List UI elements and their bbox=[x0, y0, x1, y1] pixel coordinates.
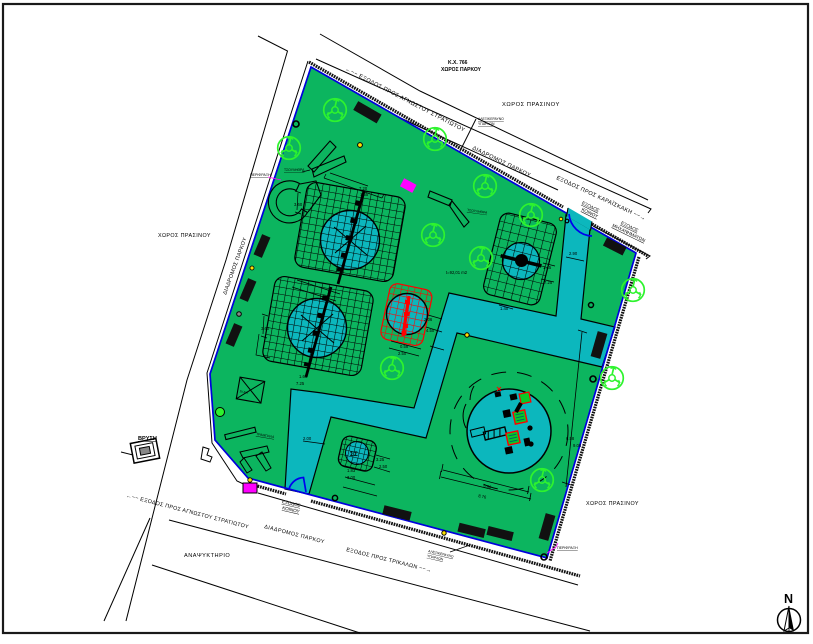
svg-text:ΠΕΡΙΦΡΑΞΗ: ΠΕΡΙΦΡΑΞΗ bbox=[250, 173, 271, 177]
svg-text:7.25: 7.25 bbox=[296, 381, 305, 386]
svg-text:4.50: 4.50 bbox=[426, 328, 435, 333]
svg-text:ΣΣ: ΣΣ bbox=[350, 451, 358, 458]
svg-text:7.20: 7.20 bbox=[359, 186, 368, 191]
svg-text:2.50: 2.50 bbox=[379, 464, 388, 469]
svg-text:3.60: 3.60 bbox=[294, 202, 303, 207]
svg-text:ΑΛΕΞΙΚΕΡΑΥΝΟ: ΑΛΕΞΙΚΕΡΑΥΝΟ bbox=[478, 117, 504, 121]
svg-text:9.06: 9.06 bbox=[573, 443, 582, 448]
svg-text:ΠΕΡΙΦΡΑΞΗ: ΠΕΡΙΦΡΑΞΗ bbox=[557, 546, 578, 550]
svg-text:7.25: 7.25 bbox=[544, 280, 553, 285]
svg-text:1.65: 1.65 bbox=[299, 374, 308, 379]
svg-text:3.25: 3.25 bbox=[376, 457, 385, 462]
svg-text:3.00: 3.00 bbox=[347, 475, 356, 480]
svg-text:ΥΠΑΡΧΩΝ: ΥΠΑΡΧΩΝ bbox=[478, 122, 495, 126]
svg-text:1.65: 1.65 bbox=[360, 192, 369, 197]
svg-text:ΒΡΥΣΗ: ΒΡΥΣΗ bbox=[138, 436, 157, 442]
svg-text:ΤΣΟΥΛΗΘΡΑ: ΤΣΟΥΛΗΘΡΑ bbox=[284, 168, 305, 172]
svg-text:1.83: 1.83 bbox=[347, 468, 356, 473]
svg-text:ΧΩΡΟΣ ΠΡΑΣΙΝΟΥ: ΧΩΡΟΣ ΠΡΑΣΙΝΟΥ bbox=[158, 233, 211, 239]
svg-text:N: N bbox=[784, 592, 793, 606]
svg-text:ΧΩΡΟΣ ΠΑΡΚΟΥ: ΧΩΡΟΣ ΠΑΡΚΟΥ bbox=[441, 67, 482, 73]
svg-text:ΑΝΑΨΥΚΤΗΡΙΟ: ΑΝΑΨΥΚΤΗΡΙΟ bbox=[184, 553, 230, 559]
svg-text:t=92,01 m2: t=92,01 m2 bbox=[446, 270, 468, 275]
svg-text:Κ.Χ. 766: Κ.Χ. 766 bbox=[448, 60, 468, 66]
svg-text:2.90: 2.90 bbox=[569, 251, 578, 256]
svg-text:2.50: 2.50 bbox=[398, 351, 407, 356]
svg-text:0.58: 0.58 bbox=[400, 344, 409, 349]
svg-text:2.06: 2.06 bbox=[424, 317, 433, 322]
svg-text:1.45: 1.45 bbox=[543, 265, 552, 270]
svg-text:ΧΩΡΟΣ ΠΡΑΣΙΝΟΥ: ΧΩΡΟΣ ΠΡΑΣΙΝΟΥ bbox=[502, 102, 560, 108]
svg-text:1.40: 1.40 bbox=[500, 306, 509, 311]
svg-text:3.60: 3.60 bbox=[261, 326, 270, 331]
svg-text:2.00: 2.00 bbox=[303, 436, 312, 441]
svg-text:ΧΩΡΟΣ ΠΡΑΣΙΝΟΥ: ΧΩΡΟΣ ΠΡΑΣΙΝΟΥ bbox=[586, 501, 639, 507]
svg-text:6.58: 6.58 bbox=[566, 436, 575, 441]
